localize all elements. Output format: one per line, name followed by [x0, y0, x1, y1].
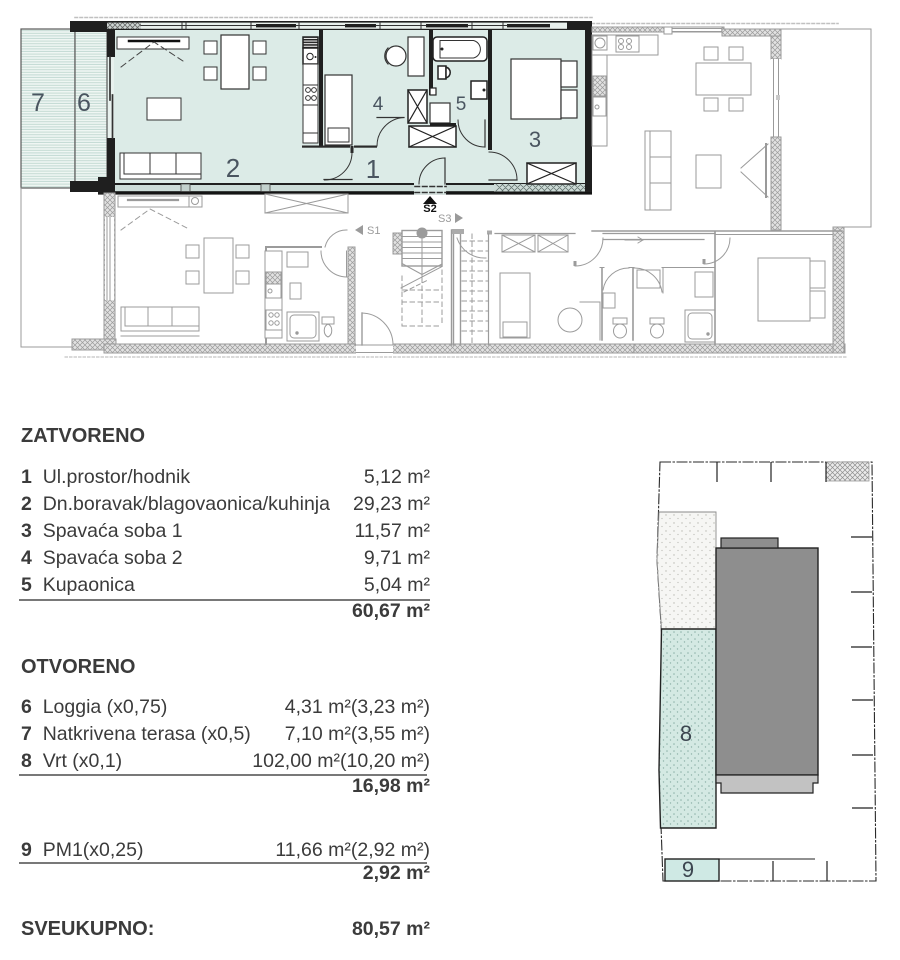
svg-text:9: 9 — [682, 857, 694, 882]
svg-text:7: 7 — [31, 89, 45, 117]
svg-text:6: 6 — [77, 89, 91, 117]
svg-text:5: 5 — [456, 94, 467, 115]
svg-text:S1: S1 — [367, 225, 380, 237]
svg-text:S3: S3 — [438, 213, 451, 225]
svg-text:8: 8 — [680, 721, 692, 746]
svg-text:4: 4 — [373, 94, 384, 115]
svg-text:1: 1 — [366, 154, 380, 184]
svg-text:S2: S2 — [423, 203, 436, 215]
svg-text:2: 2 — [226, 153, 240, 183]
svg-text:3: 3 — [529, 127, 541, 152]
